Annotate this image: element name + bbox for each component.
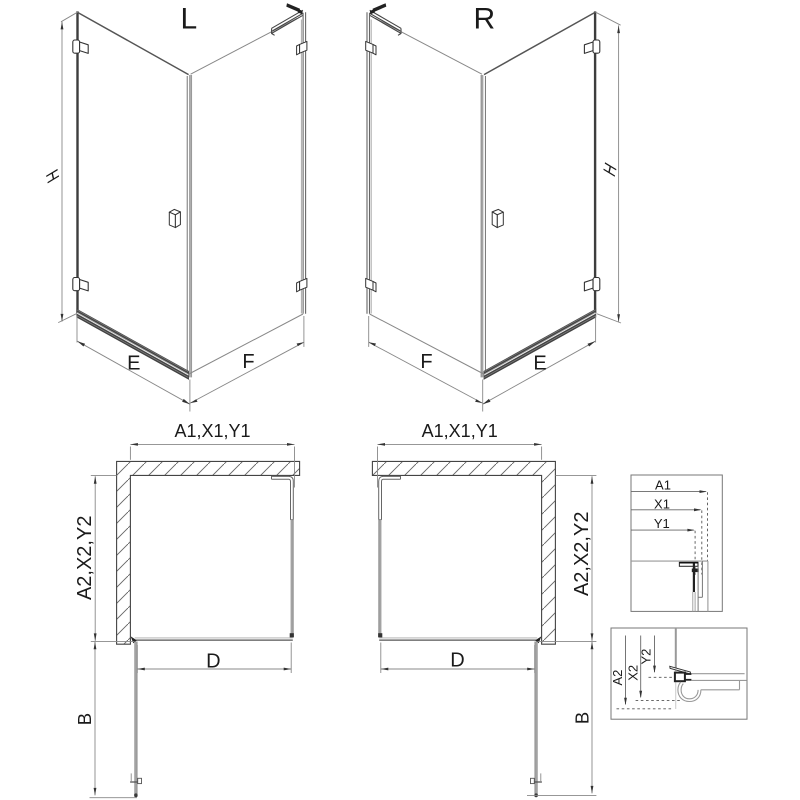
svg-text:X2: X2 bbox=[626, 665, 641, 681]
svg-text:E: E bbox=[127, 353, 140, 375]
svg-text:D: D bbox=[206, 650, 220, 672]
svg-text:A1: A1 bbox=[655, 477, 671, 492]
svg-text:A2,X2,Y2: A2,X2,Y2 bbox=[74, 516, 96, 601]
svg-text:A1,X1,Y1: A1,X1,Y1 bbox=[422, 421, 498, 441]
svg-text:Y1: Y1 bbox=[654, 516, 670, 531]
svg-text:A2,X2,Y2: A2,X2,Y2 bbox=[571, 512, 593, 597]
svg-text:R: R bbox=[474, 2, 496, 35]
svg-text:E: E bbox=[533, 353, 546, 375]
svg-text:X1: X1 bbox=[654, 497, 670, 512]
svg-text:B: B bbox=[74, 713, 95, 725]
svg-text:B: B bbox=[572, 712, 593, 724]
svg-text:A1,X1,Y1: A1,X1,Y1 bbox=[174, 421, 250, 441]
svg-text:L: L bbox=[181, 2, 198, 35]
svg-text:F: F bbox=[420, 351, 432, 373]
svg-text:A2: A2 bbox=[610, 670, 625, 686]
svg-text:D: D bbox=[450, 649, 464, 671]
svg-text:Y2: Y2 bbox=[639, 649, 654, 665]
svg-text:F: F bbox=[242, 351, 254, 373]
